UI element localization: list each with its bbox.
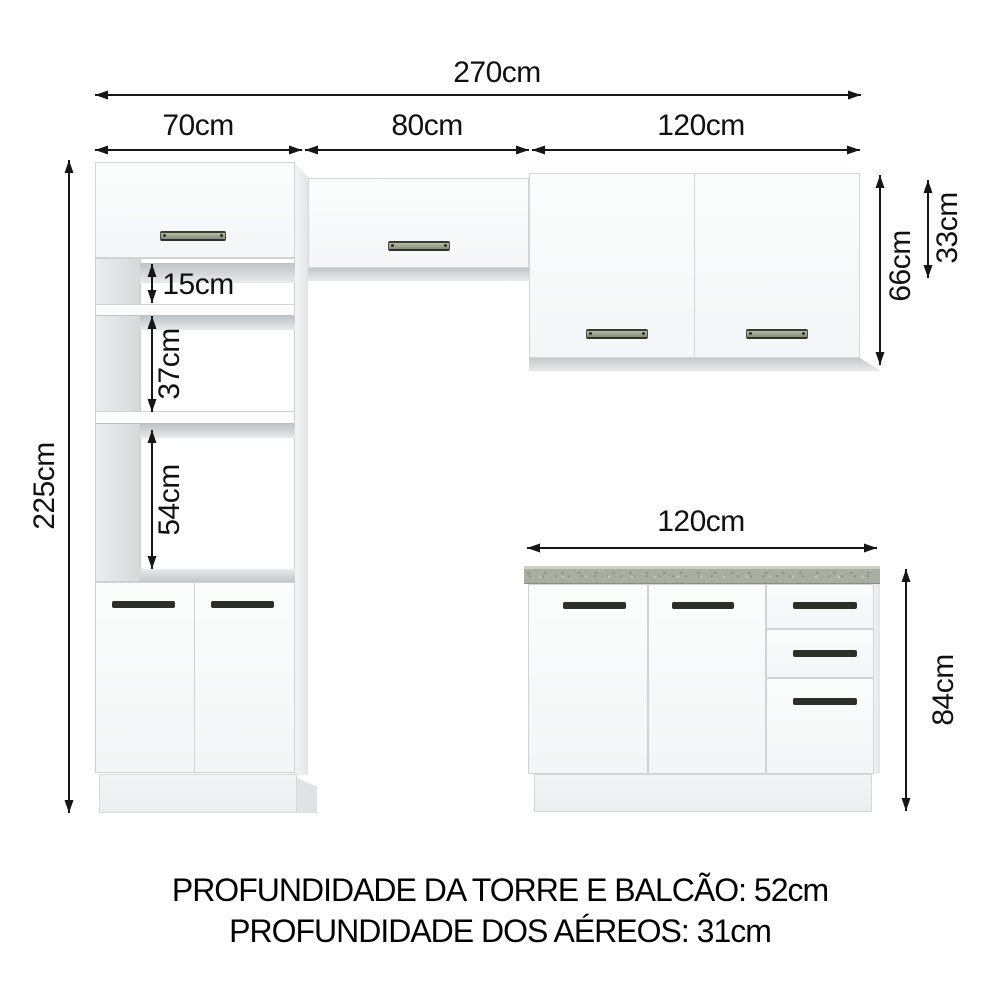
- label-upper-right-width: 120cm: [657, 109, 745, 143]
- dimension-arrows: [0, 0, 1000, 1000]
- note-depth-uppers: PROFUNDIDADE DOS AÉREOS: 31cm: [0, 913, 1000, 950]
- label-tower-width: 70cm: [162, 109, 233, 143]
- label-middle-width: 80cm: [391, 109, 462, 143]
- label-gap-top: 15cm: [162, 268, 233, 302]
- label-counter-height: 84cm: [927, 654, 961, 725]
- label-tower-height: 225cm: [28, 442, 62, 530]
- label-upper-middle-height: 33cm: [931, 192, 965, 263]
- note-depth-tower-counter: PROFUNDIDADE DA TORRE E BALCÃO: 52cm: [0, 872, 1000, 909]
- label-upper-height: 66cm: [884, 230, 918, 301]
- label-total-width: 270cm: [453, 56, 541, 90]
- label-counter-width: 120cm: [657, 505, 745, 539]
- kitchen-cabinet-dimension-diagram: 270cm 70cm 80cm 120cm 225cm 15cm 37cm 54…: [0, 0, 1000, 1000]
- label-gap-bottom: 54cm: [153, 464, 187, 535]
- label-gap-middle: 37cm: [153, 328, 187, 399]
